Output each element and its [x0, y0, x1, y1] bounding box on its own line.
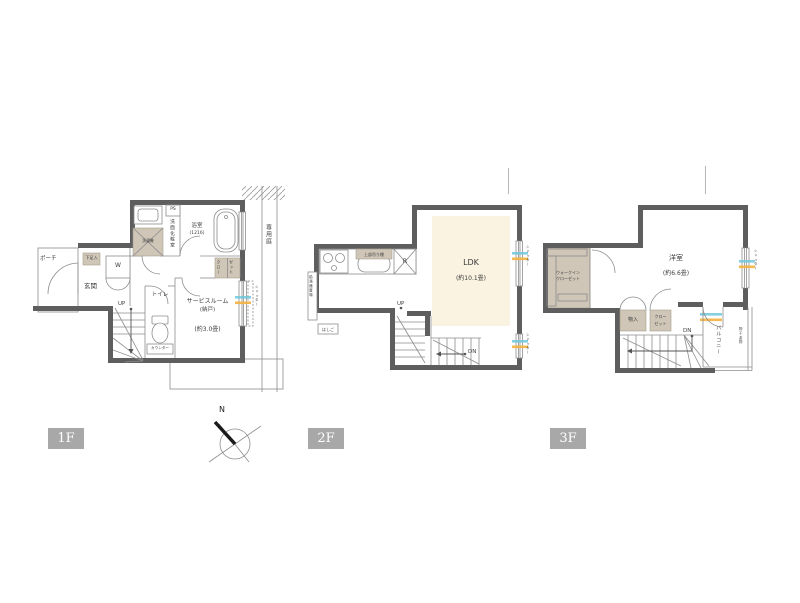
entrance-label: 玄関	[84, 282, 97, 290]
bedroom-size-label: (約6.6畳)	[646, 270, 706, 278]
balcony-label: バルコニー	[715, 325, 721, 355]
toilet-label: トイレ	[146, 292, 174, 299]
ladder-label: はしご	[318, 327, 338, 332]
bathtub	[214, 209, 238, 252]
private-garden-label: 専用庭	[264, 224, 272, 245]
floorplan-3f-graphics	[543, 186, 768, 400]
floor-label-2f: 2F	[308, 428, 344, 449]
dn-label-2f: DN	[468, 349, 476, 356]
closet-label-line2: ゼット	[229, 260, 234, 275]
balcony-outline	[703, 307, 752, 371]
refrigerator-label: R	[394, 257, 416, 265]
shutter-lower-label-2f: シャッター	[525, 333, 529, 355]
washer-label: 洗濯機	[133, 239, 163, 244]
windows-3f	[700, 248, 755, 321]
vanity-counter	[134, 206, 162, 224]
up-label-1f: UP	[118, 301, 125, 308]
floorplan-1f: ポーチ 玄関 下足入 W PS 洗面化粧室 洗濯機 浴室 (1216) クロー …	[30, 186, 290, 398]
ldk-floor-fill	[432, 216, 510, 326]
bathroom-size-label: (1216)	[180, 231, 214, 237]
stove	[320, 250, 348, 273]
dn-label-3f: DN	[683, 328, 691, 335]
up-label-2f: UP	[397, 301, 404, 308]
upper-shelf-label: 上部吊り棚	[356, 252, 392, 257]
porch-label: ポーチ	[40, 256, 57, 263]
compass-north-label: N	[219, 405, 225, 415]
wic-label-line1: ウォークイン	[551, 270, 585, 275]
counter-label: カウンター	[145, 346, 175, 350]
service-room-note-label: (納戸)	[175, 307, 240, 314]
shutter-upper-label-2f: シャッター	[525, 245, 529, 267]
stairs-1f	[113, 308, 145, 362]
shoe-cabinet-label: 下足入	[83, 255, 100, 260]
compass-needle	[215, 422, 235, 444]
shutter-label-3f: シャッター	[753, 249, 757, 271]
ldk-size-label: (約10.1畳)	[431, 275, 511, 283]
floorplan-3f: 洋室 (約6.6畳) ウォークイン クローゼット 物入 クロー ゼット DN バ…	[543, 186, 768, 400]
closet-label-line1: クロー	[217, 260, 222, 275]
wic-door	[592, 250, 615, 273]
site-boundary-stub-2f	[508, 168, 509, 194]
floor-label-3f: 3F	[550, 428, 586, 449]
floorplan-canvas: ポーチ 玄関 下足入 W PS 洗面化粧室 洗濯機 浴室 (1216) クロー …	[0, 0, 800, 603]
service-room-size-label: (約3.0畳)	[175, 326, 240, 334]
floor-label-1f: 1F	[48, 428, 84, 449]
floorplan-2f-graphics	[304, 186, 540, 400]
wic-label-line2: クローゼット	[551, 276, 585, 281]
floorplan-2f: LDK (約10.1畳) 上部吊り棚 R 給湯器置場 はしご UP DN シャッ…	[304, 186, 540, 400]
balcony-door	[703, 307, 723, 327]
laundry-hook-label: 物干金物	[738, 327, 742, 345]
compass-icon	[205, 410, 261, 466]
ps-label: PS	[166, 207, 180, 213]
w-storage-label: W	[106, 262, 130, 270]
ldk-label: LDK	[431, 258, 511, 268]
service-room-label: サービスルーム	[175, 298, 240, 306]
storage-label: 物入	[620, 317, 646, 323]
shutter-label-1f: シャッター	[254, 285, 258, 307]
site-boundary-stub-3f	[705, 166, 706, 194]
water-heater-label: 給湯器置場	[309, 275, 313, 298]
bedroom-label: 洋室	[646, 254, 706, 263]
storage-box	[620, 297, 646, 331]
closet-label-line2-3f: ゼット	[650, 321, 671, 326]
bathroom-label: 浴室	[180, 223, 214, 230]
washroom-label: 洗面化粧室	[168, 219, 174, 248]
stairs-3f	[620, 335, 709, 368]
closet-label-line1-3f: クロー	[650, 314, 671, 319]
